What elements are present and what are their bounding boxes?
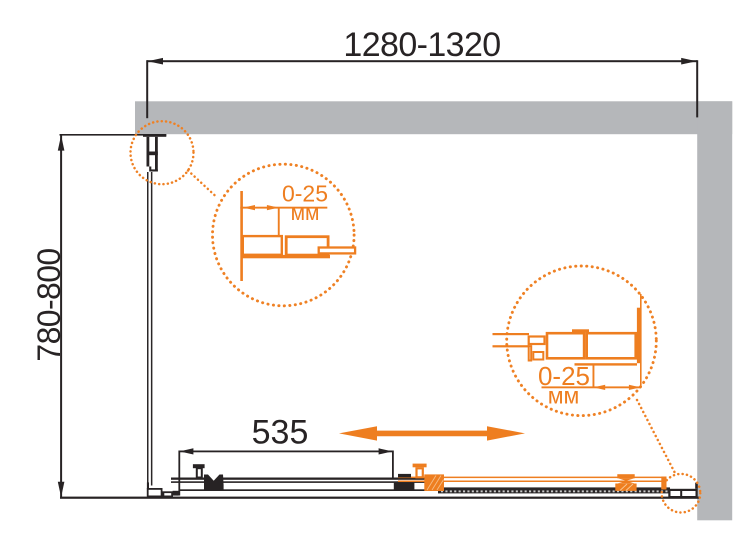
svg-text:1280-1320: 1280-1320 xyxy=(343,26,500,64)
svg-text:535: 535 xyxy=(252,413,309,451)
svg-text:мм: мм xyxy=(548,383,580,409)
svg-text:780-800: 780-800 xyxy=(31,248,67,361)
svg-text:мм: мм xyxy=(291,202,320,225)
